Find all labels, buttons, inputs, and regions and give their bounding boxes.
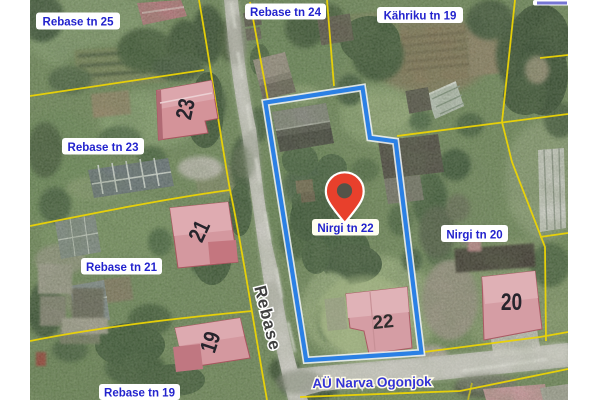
- svg-text:Rebase tn 23: Rebase tn 23: [68, 142, 139, 154]
- svg-text:20: 20: [501, 288, 522, 316]
- svg-text:Nirgi tn 22: Nirgi tn 22: [317, 223, 373, 235]
- svg-text:Rebase tn 21: Rebase tn 21: [86, 262, 158, 274]
- svg-text:AÜ Narva Ogonjok: AÜ Narva Ogonjok: [312, 374, 432, 391]
- svg-text:Rebase tn 19: Rebase tn 19: [104, 388, 175, 400]
- svg-text:Nirgi tn 20: Nirgi tn 20: [446, 230, 502, 242]
- svg-text:Kähriku tn 19: Kähriku tn 19: [384, 11, 457, 23]
- svg-text:22: 22: [372, 311, 395, 334]
- svg-text:Rebase tn 24: Rebase tn 24: [250, 7, 322, 19]
- svg-text:Rebase tn 25: Rebase tn 25: [43, 17, 115, 29]
